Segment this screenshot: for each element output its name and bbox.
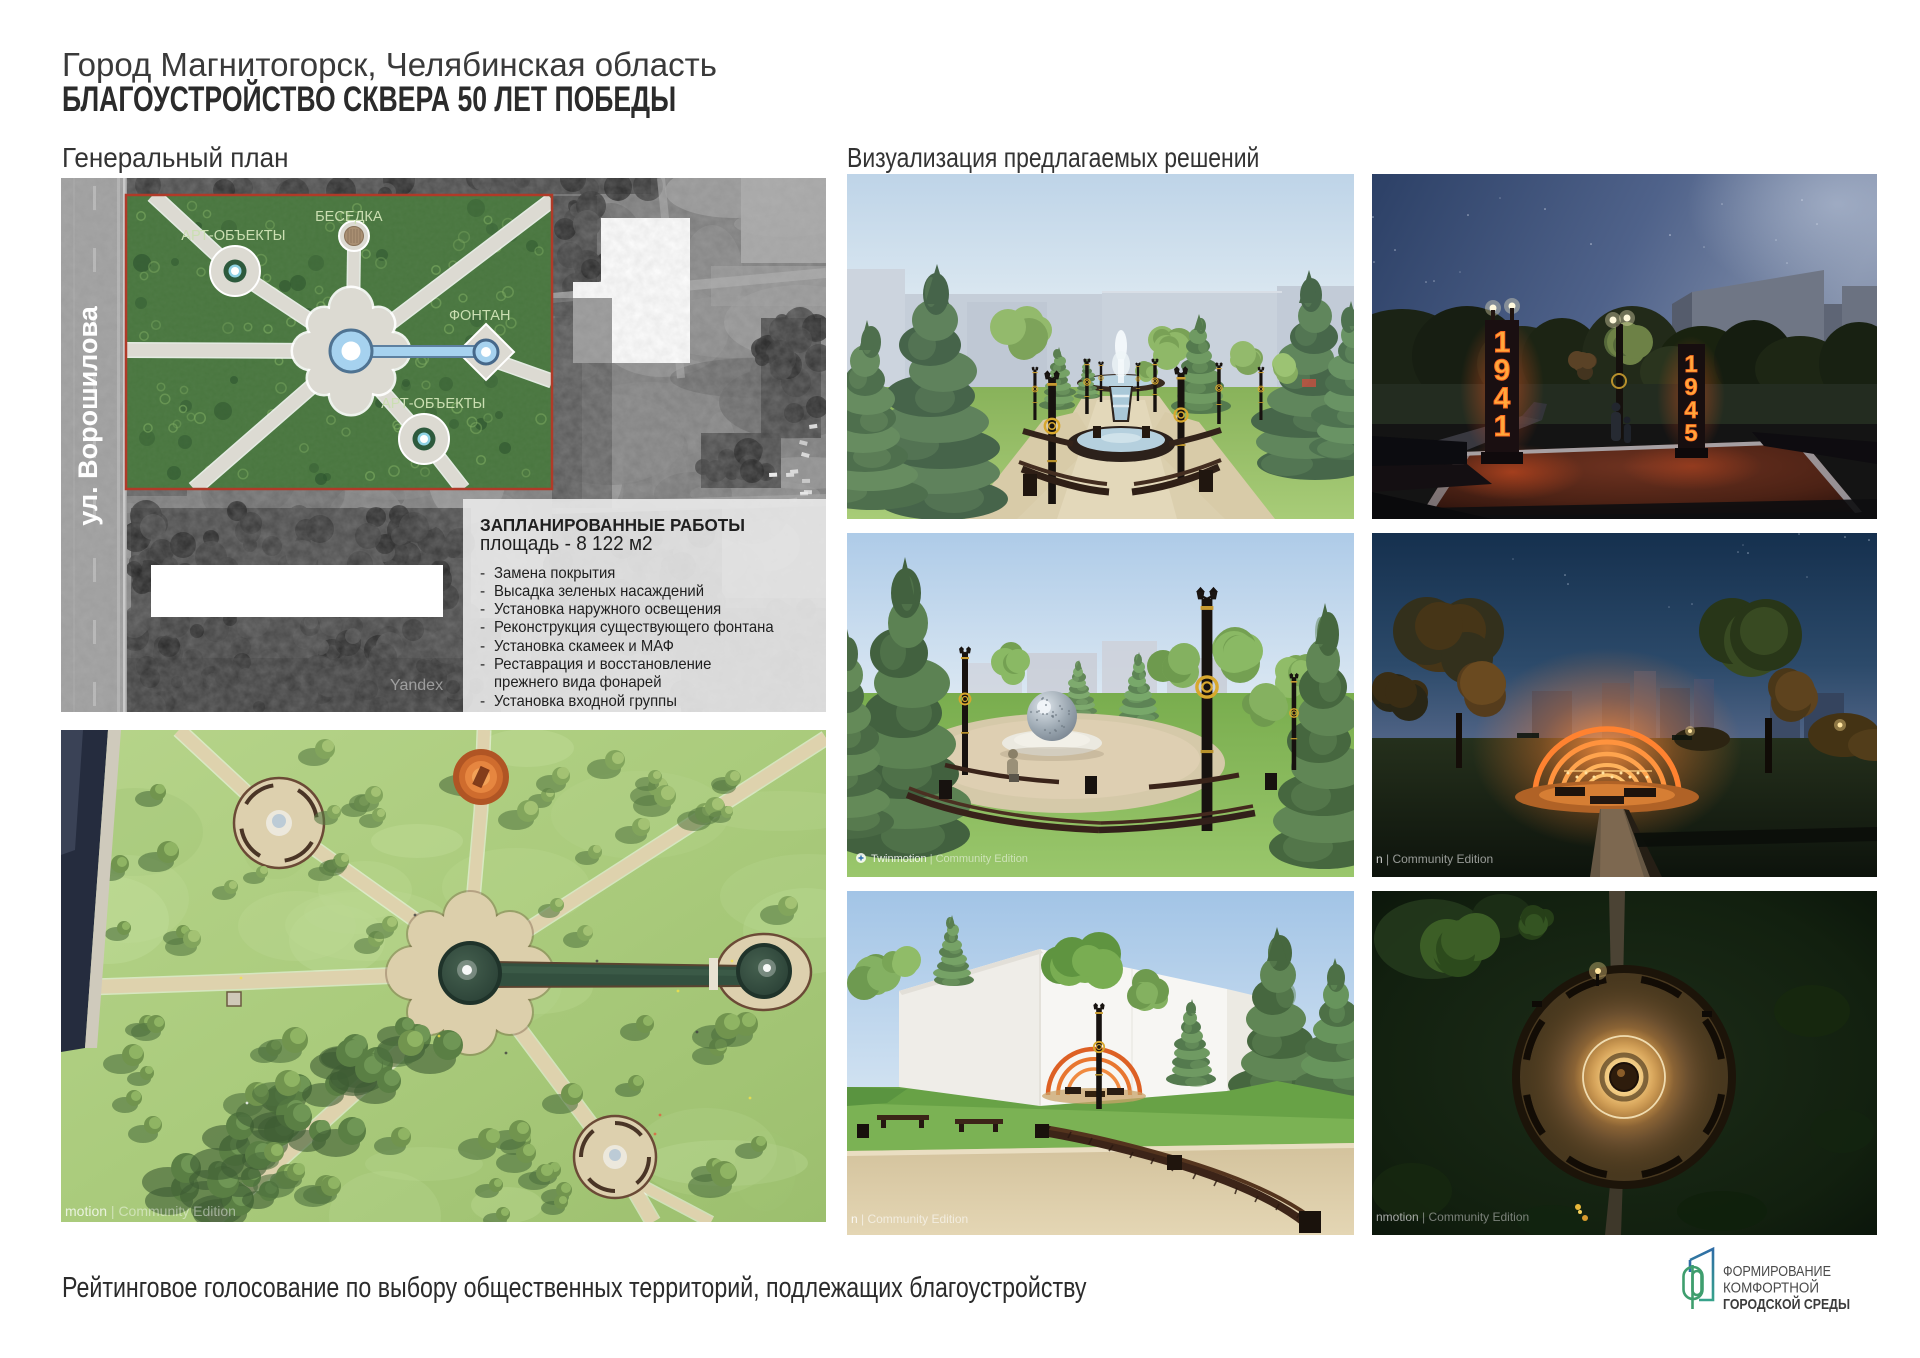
svg-text:Реконструкция существующего фо: Реконструкция существующего фонтана — [494, 619, 774, 636]
svg-text:ФОНТАН: ФОНТАН — [449, 308, 510, 324]
svg-text:прежнего вида фонарей: прежнего вида фонарей — [494, 674, 662, 691]
svg-text:КОМФОРТНОЙ: КОМФОРТНОЙ — [1723, 1279, 1819, 1297]
svg-text:-: - — [480, 565, 485, 582]
svg-text:ФОРМИРОВАНИЕ: ФОРМИРОВАНИЕ — [1723, 1263, 1831, 1280]
svg-text:Yandex: Yandex — [390, 677, 443, 694]
svg-text:-: - — [480, 638, 485, 655]
svg-text:Высадка зеленых насаждений: Высадка зеленых насаждений — [494, 583, 704, 600]
svg-text:Twinmotion | Community Edition: Twinmotion | Community Edition — [871, 853, 1028, 865]
svg-text:Установка входной группы: Установка входной группы — [494, 693, 677, 710]
svg-text:ГОРОДСКОЙ СРЕДЫ: ГОРОДСКОЙ СРЕДЫ — [1723, 1295, 1850, 1313]
svg-text:-: - — [480, 693, 485, 710]
svg-text:АРТ-ОБЪЕКТЫ: АРТ-ОБЪЕКТЫ — [381, 396, 485, 412]
svg-text:БЕСЕДКА: БЕСЕДКА — [315, 209, 383, 225]
svg-text:АРТ-ОБЪЕКТЫ: АРТ-ОБЪЕКТЫ — [181, 228, 285, 244]
svg-text:-: - — [480, 619, 485, 636]
svg-text:nmotion | Community Edition: nmotion | Community Edition — [1376, 1210, 1529, 1224]
svg-text:-: - — [480, 656, 485, 673]
svg-text:n | Community Edition: n | Community Edition — [851, 1212, 968, 1226]
svg-text:Установка скамеек и МАФ: Установка скамеек и МАФ — [494, 638, 674, 655]
svg-text:motion | Community Edition: motion | Community Edition — [65, 1203, 236, 1219]
svg-text:Замена покрытия: Замена покрытия — [494, 565, 615, 582]
svg-text:-: - — [480, 583, 485, 600]
svg-text:ул. Ворошилова: ул. Ворошилова — [73, 305, 103, 525]
svg-text:-: - — [480, 601, 485, 618]
svg-text:1: 1 — [1494, 410, 1511, 443]
svg-text:n | Community Edition: n | Community Edition — [1376, 852, 1493, 866]
svg-text:Установка наружного освещения: Установка наружного освещения — [494, 601, 721, 618]
svg-text:площадь - 8 122 м2: площадь - 8 122 м2 — [480, 533, 653, 556]
svg-text:5: 5 — [1684, 420, 1697, 447]
svg-text:Реставрация и восстановление: Реставрация и восстановление — [494, 656, 711, 673]
